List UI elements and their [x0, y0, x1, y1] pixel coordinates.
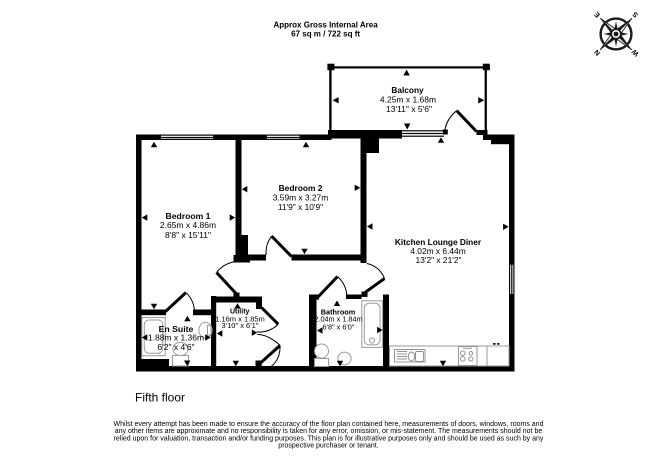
- svg-text:relied upon for valuation, tra: relied upon for valuation, transaction a…: [114, 435, 544, 442]
- svg-text:S: S: [631, 10, 639, 18]
- svg-text:3.59m x 3.27m: 3.59m x 3.27m: [273, 192, 328, 202]
- svg-text:67 sq m / 722 sq ft: 67 sq m / 722 sq ft: [291, 30, 360, 39]
- svg-text:6'2" x 4'6": 6'2" x 4'6": [157, 342, 194, 352]
- svg-text:3'10" x 6'1": 3'10" x 6'1": [222, 321, 259, 330]
- svg-text:2.65m x 4.86m: 2.65m x 4.86m: [160, 220, 216, 230]
- svg-text:Fifth floor: Fifth floor: [135, 391, 185, 405]
- svg-text:Whilst every attempt has been: Whilst every attempt has been made to en…: [114, 421, 544, 428]
- svg-text:8'8" x 15'11": 8'8" x 15'11": [165, 230, 211, 240]
- svg-text:any other items are approximat: any other items are approximate and no r…: [115, 428, 543, 435]
- svg-text:13'2" x 21'2": 13'2" x 21'2": [416, 255, 462, 265]
- svg-text:Approx Gross Internal Area: Approx Gross Internal Area: [274, 20, 379, 29]
- svg-text:11'9" x 10'9": 11'9" x 10'9": [278, 202, 323, 212]
- svg-text:Balcony: Balcony: [391, 85, 424, 95]
- svg-text:E: E: [593, 10, 601, 18]
- svg-text:Bedroom 2: Bedroom 2: [279, 183, 323, 193]
- svg-text:W: W: [631, 47, 641, 57]
- svg-text:13'11" x 5'6": 13'11" x 5'6": [386, 104, 432, 114]
- svg-text:6'8" x 6'0": 6'8" x 6'0": [323, 323, 355, 332]
- svg-text:prospective purchaser or tenan: prospective purchaser or tenant.: [278, 443, 378, 450]
